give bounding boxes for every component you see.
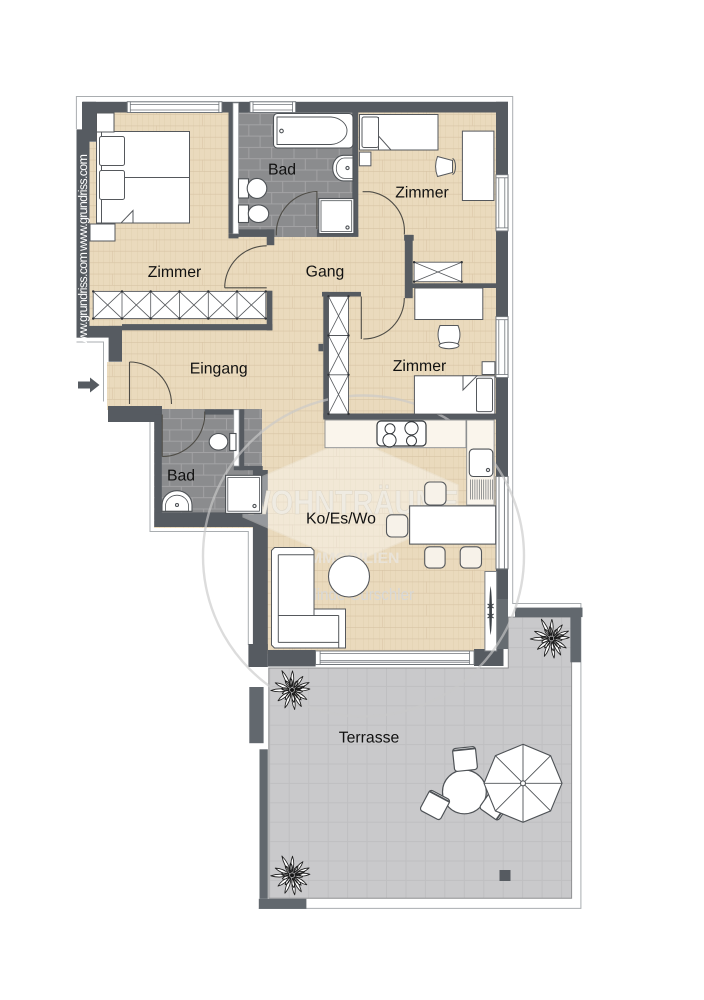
svg-text:www.grundriss.com: www.grundriss.com xyxy=(76,253,90,350)
svg-text:www.grundriss.com: www.grundriss.com xyxy=(76,155,90,252)
svg-text:Terrasse: Terrasse xyxy=(339,730,400,747)
svg-text:Bad: Bad xyxy=(268,162,296,179)
svg-text:Zimmer: Zimmer xyxy=(148,264,202,281)
svg-text:Zimmer: Zimmer xyxy=(395,185,449,202)
svg-text:Gang: Gang xyxy=(306,264,345,281)
svg-text:Eingang: Eingang xyxy=(190,361,248,378)
svg-text:Zimmer: Zimmer xyxy=(393,358,447,375)
svg-text:Ko/Es/Wo: Ko/Es/Wo xyxy=(306,511,376,528)
svg-text:Bad: Bad xyxy=(167,468,195,485)
